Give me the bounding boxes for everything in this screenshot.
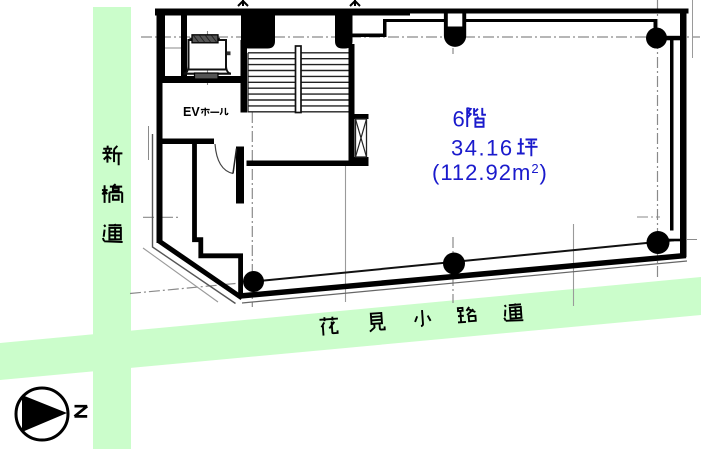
- svg-text:EV: EV: [183, 105, 200, 119]
- svg-text:(112.92m2): (112.92m2): [432, 160, 548, 185]
- svg-text:6: 6: [453, 107, 465, 132]
- svg-text:34.16: 34.16: [451, 136, 514, 161]
